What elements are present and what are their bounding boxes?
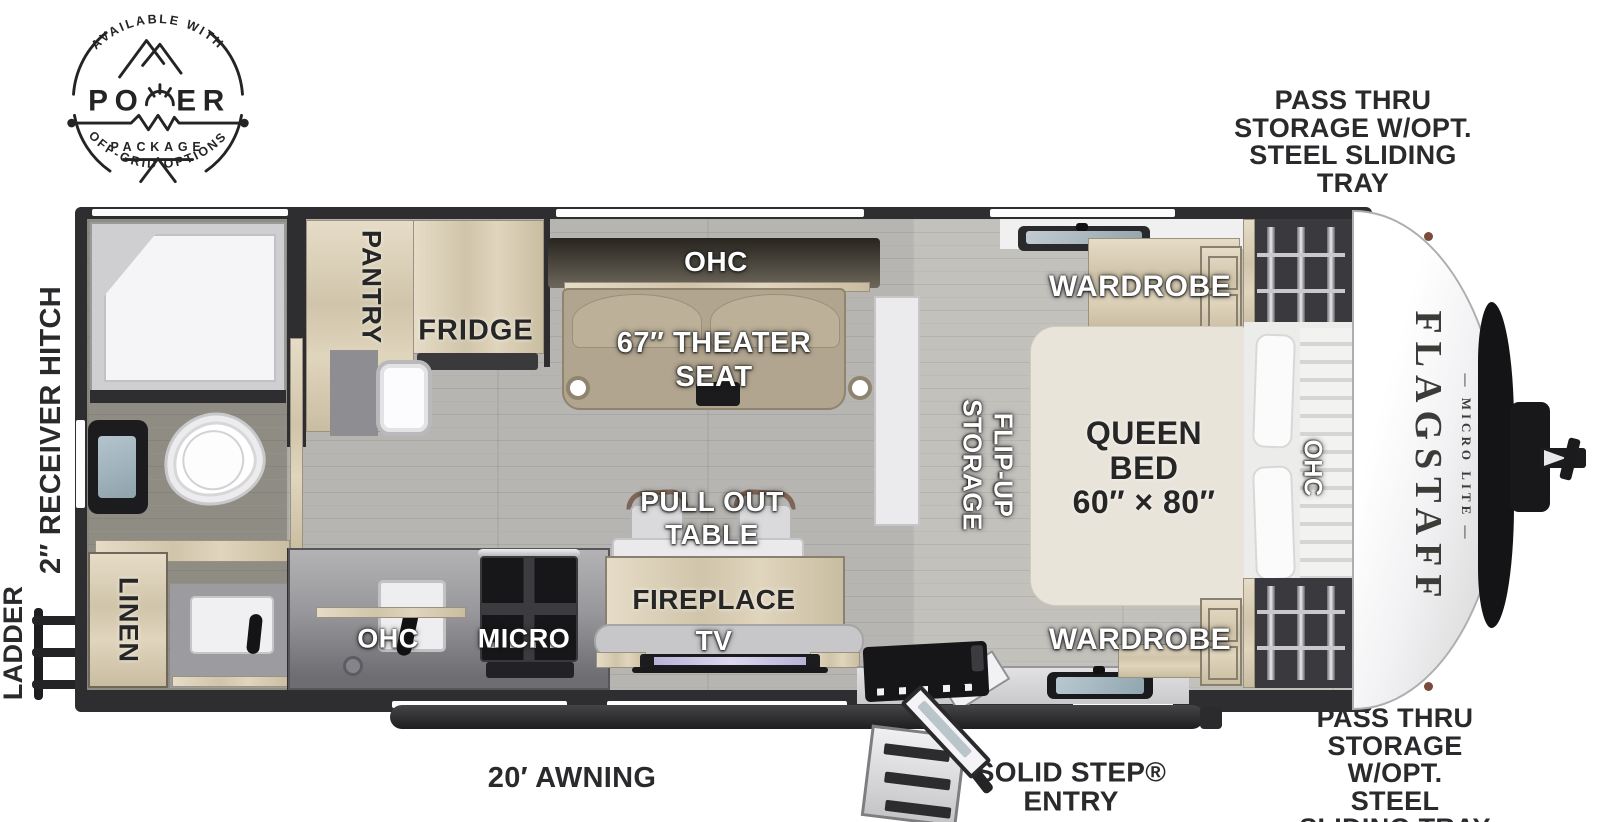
floorplan-canvas: AVAILABLE WITH PO ER PACKAGE OFF-GRID OP… [0, 0, 1600, 822]
front-cap-window [1478, 302, 1514, 628]
ladder-label: LADDER [0, 586, 28, 700]
hanger-pin [1257, 610, 1345, 614]
rod-cabinet-door [1243, 219, 1255, 331]
queen-bed-label: QUEEN BED 60″ × 80″ [1073, 416, 1216, 520]
hanger-rod [1327, 586, 1335, 680]
pantry-label: PANTRY [356, 230, 387, 344]
shower-pan [104, 234, 276, 382]
fireplace-label: FIREPLACE [632, 584, 795, 616]
cap-rivet [1424, 232, 1433, 241]
rod-cabinet-bottom [1243, 578, 1355, 688]
linen-label: LINEN [113, 577, 144, 663]
skylight-knob [1076, 223, 1088, 231]
kitchen-ohc-rail [316, 607, 466, 618]
pillow [1252, 333, 1296, 448]
badge-power-left: PO [88, 85, 144, 118]
note-line: PASS THRU [1230, 87, 1477, 115]
window-top-living [556, 209, 864, 217]
wardrobe-bottom-label: WARDROBE [1049, 623, 1231, 657]
entry-door-knob [1093, 666, 1105, 674]
flip-up-line: FLIP-UP [988, 413, 1019, 518]
tv-screen-glass [654, 657, 806, 665]
bed-ohc-label: OHC [1298, 439, 1327, 496]
pull-out-table-label: PULL OUT TABLE [640, 485, 783, 551]
living-ohc-label: OHC [684, 246, 748, 278]
theater-label-line: 67″ THEATER [617, 326, 812, 360]
bath-window-frame [88, 420, 148, 514]
bath-vanity-edge [172, 676, 290, 687]
hanger-rod [1297, 586, 1305, 680]
micro-label: MICRO [478, 624, 571, 655]
window-left-bath [76, 420, 85, 508]
hanger-rod [1267, 586, 1275, 680]
cap-rivet [1424, 682, 1433, 691]
shower-ledge [90, 390, 286, 403]
window-top-rear [92, 209, 288, 216]
entry-door-glass [1056, 677, 1144, 694]
entry-steps [860, 724, 1000, 822]
hanger-pin [1257, 646, 1345, 650]
pass-thru-note-top: PASS THRU STORAGE W/OPT. STEEL SLIDING T… [1230, 87, 1477, 197]
theater-label-line: SEAT [675, 360, 752, 394]
theater-seat-label: 67″ THEATER SEAT [617, 326, 812, 394]
fridge-label: FRIDGE [418, 315, 534, 348]
pull-out-line: PULL OUT [640, 485, 783, 518]
rod-cabinet-door [1243, 578, 1255, 688]
kitchen-ohc-label: OHC [357, 624, 419, 655]
power-package-badge: AVAILABLE WITH PO ER PACKAGE OFF-GRID OP… [62, 2, 254, 198]
stove-drawer [486, 662, 574, 678]
awning-label: 20′ AWNING [488, 764, 656, 794]
awning-bar [390, 705, 1204, 729]
note-line: STORAGE W/OPT. [1293, 733, 1498, 788]
pull-out-line: TABLE [665, 518, 759, 551]
wardrobe-top-label: WARDROBE [1049, 270, 1231, 304]
awning-end-bracket [1200, 707, 1222, 729]
brand-micro-lite: — MICRO LITE — [1458, 373, 1474, 542]
brand-flagstaff: FLAGSTAFF [1406, 310, 1450, 605]
side-table-flipup-panel [874, 296, 920, 526]
hanger-rod [1297, 227, 1305, 323]
bed-label-line: 60″ × 80″ [1073, 485, 1216, 520]
receiver-hitch-label: 2″ RECEIVER HITCH [37, 286, 67, 574]
flip-up-line: STORAGE [957, 399, 988, 531]
hanger-rod [1327, 227, 1335, 323]
tv-side-pad [596, 652, 646, 668]
hanger-pin [1257, 289, 1345, 293]
bed-label-line: BED [1109, 451, 1178, 486]
bed-label-line: QUEEN [1086, 416, 1202, 451]
solid-step-entry-label: SOLID STEP® ENTRY [976, 758, 1166, 815]
bathroom-door [290, 338, 303, 553]
cupholder [566, 376, 590, 400]
laundry-basin [376, 360, 432, 436]
hanger-pin [1257, 253, 1345, 257]
sun-icon [146, 85, 173, 105]
note-line: STEEL SLIDING TRAY [1230, 142, 1477, 197]
note-line: STORAGE W/OPT. [1230, 114, 1477, 142]
tv-stand-bar [632, 667, 828, 673]
badge-power-right: ER [176, 85, 231, 118]
step-tread [884, 771, 951, 790]
fridge-counter [417, 353, 538, 370]
toilet-bowl [176, 424, 251, 497]
note-line: STEEL SLIDING TRAY [1293, 788, 1498, 822]
mountains-icon [120, 40, 181, 76]
griddle-handle [971, 645, 984, 672]
pass-thru-note-bottom: PASS THRU STORAGE W/OPT. STEEL SLIDING T… [1293, 705, 1498, 822]
flip-up-storage-label: FLIP-UP STORAGE [957, 399, 1018, 531]
rod-cabinet-top [1243, 219, 1355, 331]
note-line: ENTRY [976, 787, 1166, 816]
tv-label: TV [696, 625, 733, 657]
pillow [1252, 465, 1296, 580]
step-tread [885, 800, 952, 819]
window-top-bedroom [990, 209, 1175, 217]
hamper-base [330, 350, 378, 436]
bath-window-glass [98, 436, 136, 498]
shower [90, 222, 286, 392]
cupholder [848, 376, 872, 400]
kitchen-knob [343, 656, 363, 676]
note-line: SOLID STEP® [976, 758, 1166, 787]
hanger-rod [1267, 227, 1275, 323]
